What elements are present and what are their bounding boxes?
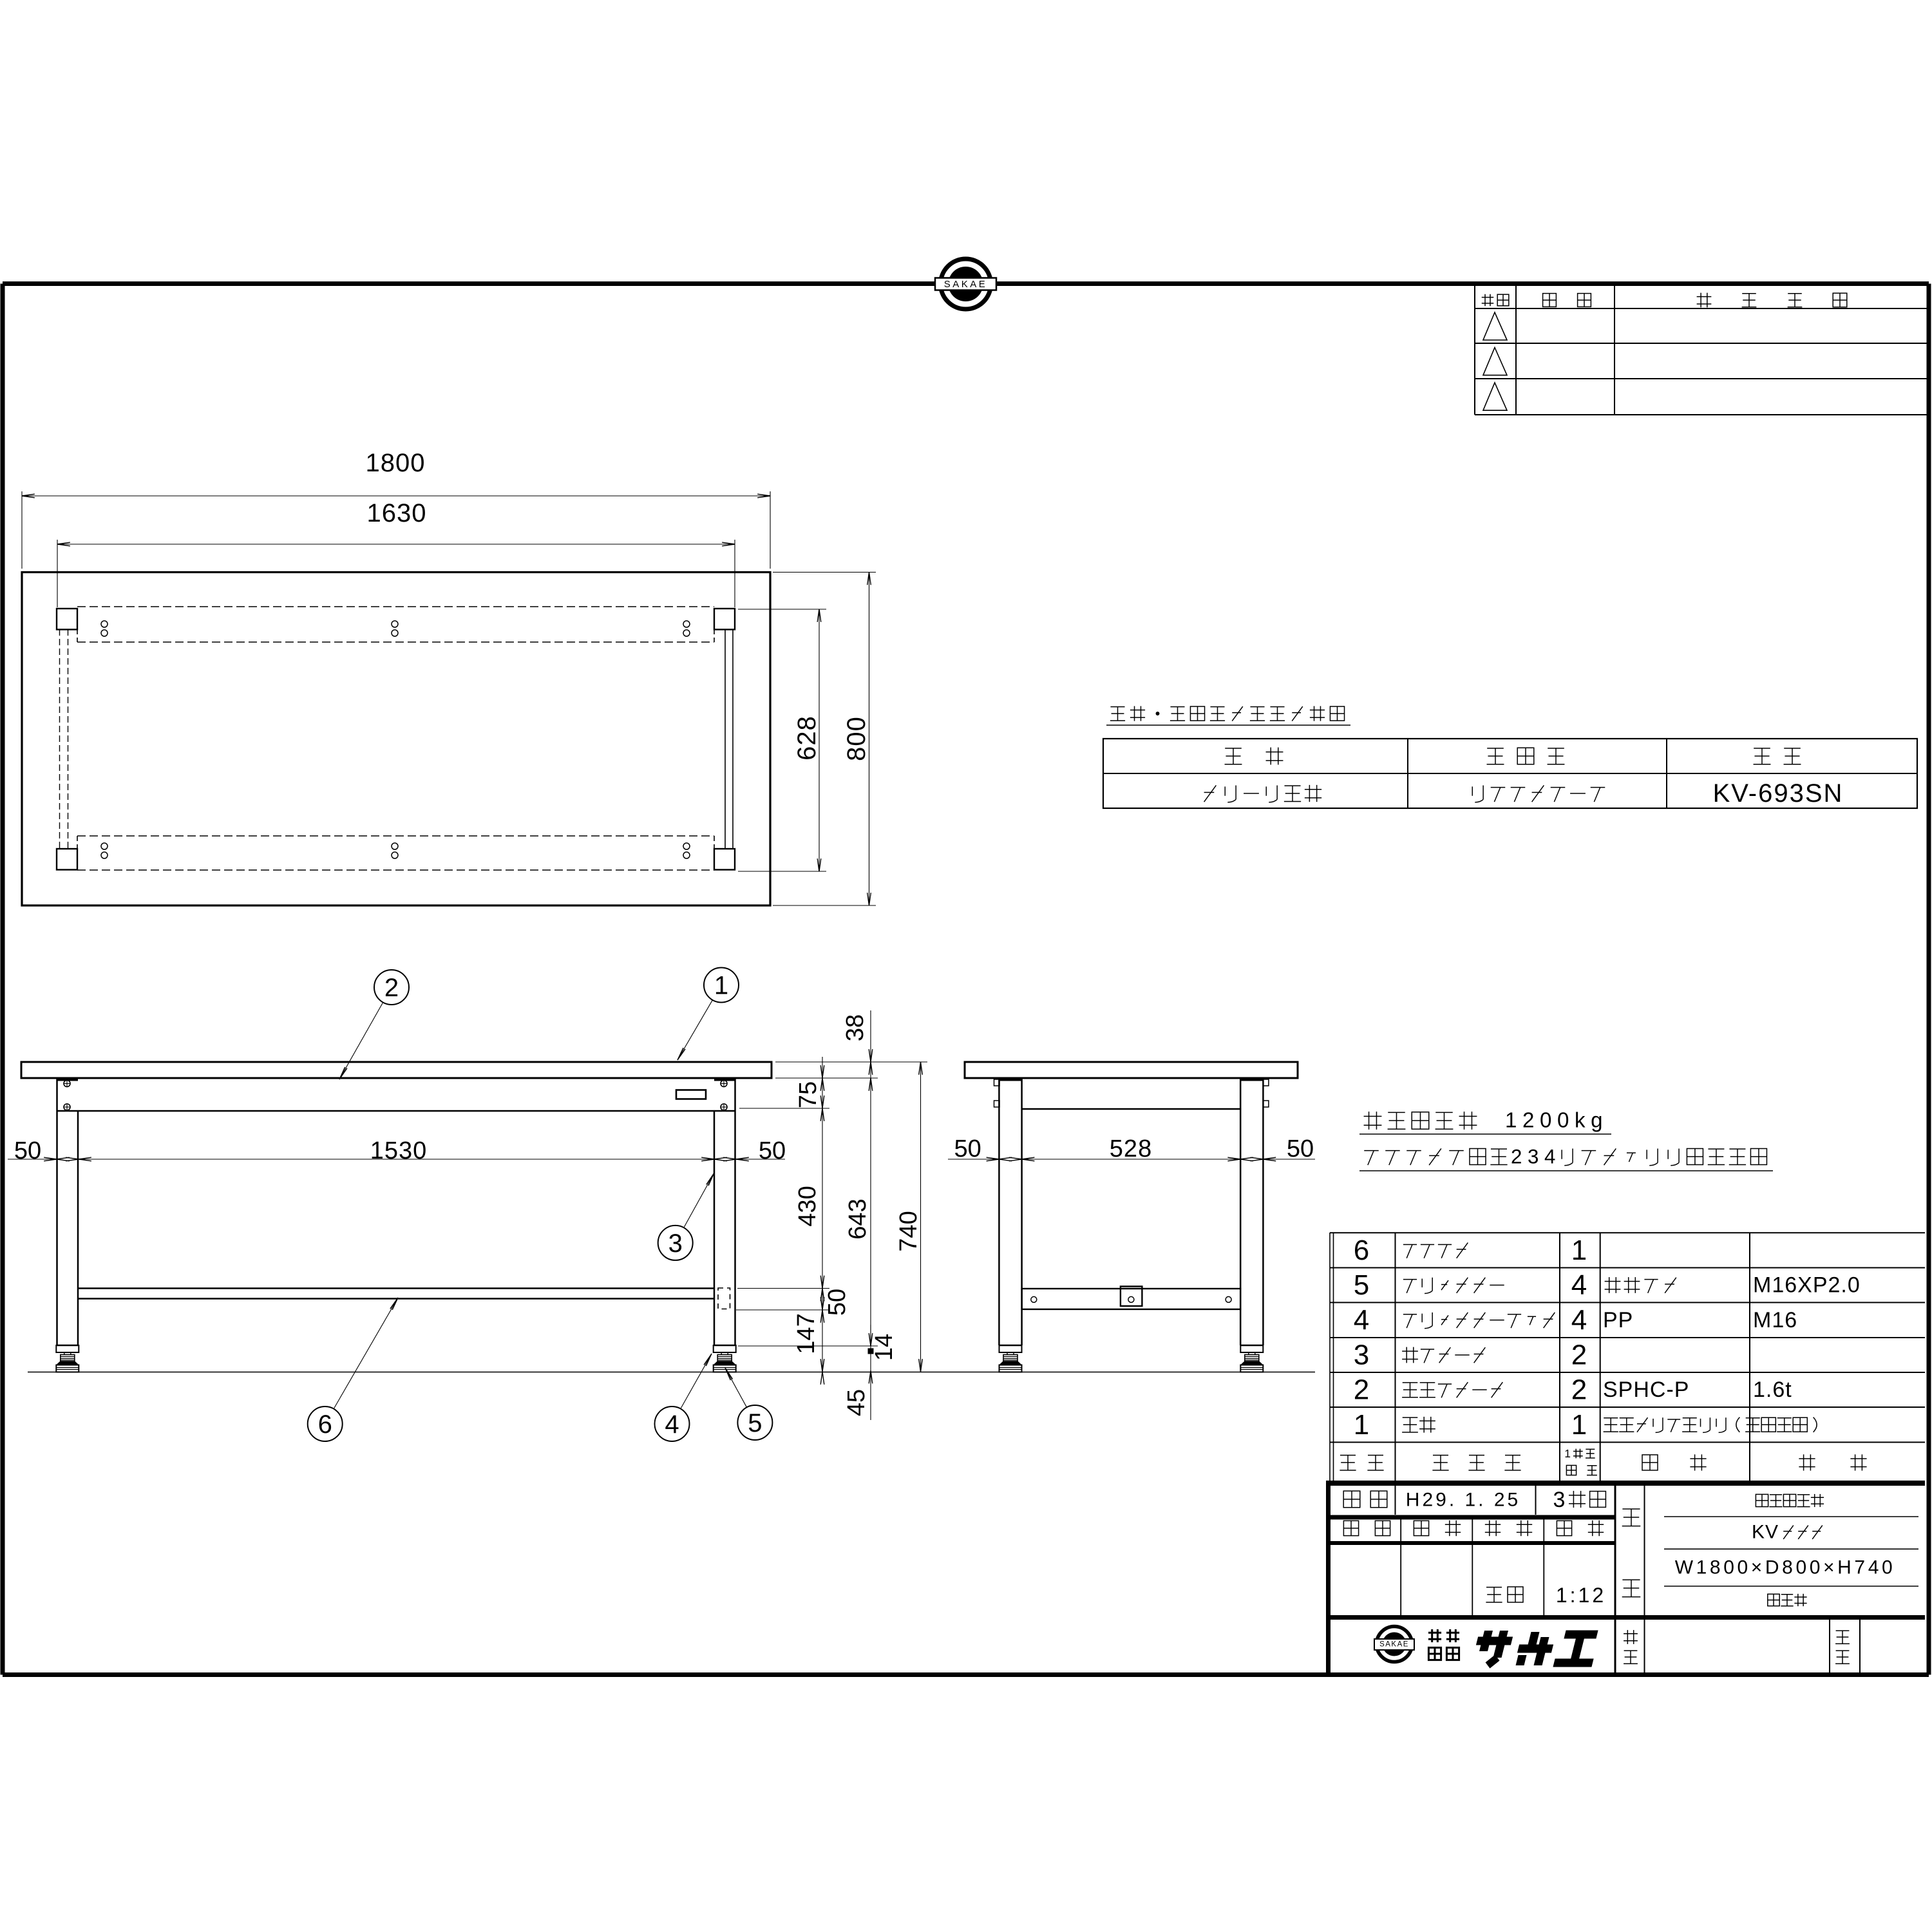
svg-text:6: 6: [1354, 1235, 1369, 1266]
svg-text:PP: PP: [1603, 1308, 1633, 1332]
svg-text:KV-693SN: KV-693SN: [1713, 779, 1844, 808]
svg-text:4: 4: [1354, 1304, 1369, 1336]
svg-text:1800: 1800: [366, 449, 426, 477]
svg-text:SAKAE: SAKAE: [944, 279, 988, 290]
svg-text:H29. 1. 25: H29. 1. 25: [1406, 1490, 1520, 1511]
svg-text:1:12: 1:12: [1556, 1584, 1606, 1607]
svg-text:M16: M16: [1753, 1308, 1797, 1332]
svg-text:14: 14: [871, 1334, 898, 1361]
svg-text:528: 528: [1110, 1135, 1152, 1162]
svg-text:1: 1: [1564, 1447, 1571, 1460]
svg-text:6: 6: [318, 1410, 332, 1439]
svg-text:W1800×D800×H740: W1800×D800×H740: [1675, 1557, 1896, 1578]
svg-text:3: 3: [1354, 1340, 1369, 1371]
svg-text:1530: 1530: [370, 1137, 428, 1164]
svg-text:234: 234: [1511, 1146, 1555, 1168]
svg-text:SAKAE: SAKAE: [1379, 1641, 1409, 1649]
svg-text:50: 50: [954, 1135, 981, 1162]
svg-text:628: 628: [793, 715, 821, 761]
svg-text:50: 50: [824, 1289, 851, 1316]
svg-text:800: 800: [842, 716, 871, 761]
svg-text:KV: KV: [1752, 1522, 1779, 1543]
svg-text:4: 4: [665, 1410, 679, 1439]
svg-text:1: 1: [1571, 1235, 1587, 1266]
svg-text:SPHC-P: SPHC-P: [1603, 1378, 1689, 1402]
svg-text:2: 2: [1354, 1374, 1369, 1406]
svg-text:M16XP2.0: M16XP2.0: [1753, 1273, 1861, 1298]
svg-text:2: 2: [1571, 1340, 1587, 1371]
svg-text:430: 430: [794, 1186, 821, 1226]
svg-text:3: 3: [1553, 1488, 1566, 1512]
svg-text:1630: 1630: [367, 499, 427, 527]
svg-text:1: 1: [1354, 1409, 1369, 1441]
svg-text:5: 5: [748, 1409, 762, 1437]
svg-text:2: 2: [384, 974, 399, 1002]
svg-text:1: 1: [1571, 1409, 1587, 1441]
svg-text:147: 147: [793, 1313, 820, 1354]
svg-text:643: 643: [844, 1198, 871, 1239]
svg-text:4: 4: [1571, 1269, 1587, 1301]
svg-text:50: 50: [1287, 1135, 1314, 1162]
svg-text:4: 4: [1571, 1304, 1587, 1336]
svg-text:740: 740: [895, 1211, 922, 1251]
svg-text:45: 45: [843, 1389, 870, 1416]
svg-text:3: 3: [668, 1229, 683, 1258]
svg-text:1.6t: 1.6t: [1753, 1378, 1792, 1402]
svg-text:50: 50: [14, 1137, 41, 1164]
svg-text:2: 2: [1571, 1374, 1587, 1406]
svg-text:50: 50: [759, 1137, 786, 1164]
svg-text:5: 5: [1354, 1269, 1369, 1301]
svg-text:75: 75: [795, 1081, 822, 1108]
svg-text:1: 1: [714, 972, 728, 1000]
svg-text:38: 38: [842, 1014, 869, 1041]
